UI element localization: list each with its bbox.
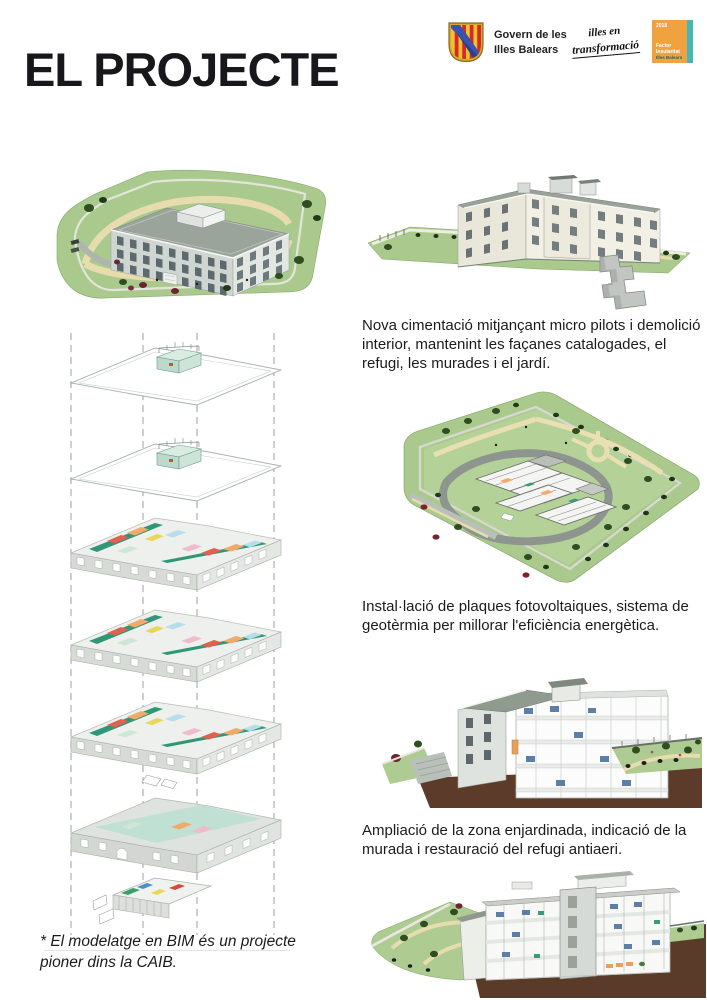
poster-page: EL PROJECTE Govern de lesIlles Balears [0, 0, 707, 1000]
building-section [456, 871, 680, 980]
site-render-illustration [27, 142, 332, 312]
left-garden [382, 741, 452, 785]
footnote: * El modelatge en BIM és un projecte pio… [40, 932, 312, 974]
roof-level-2 [71, 438, 281, 501]
caption-garden: Ampliació de la zona enjardinada, indica… [362, 821, 707, 859]
building-render-illustration [358, 147, 706, 315]
section-render-2-illustration [364, 868, 707, 1000]
section-render-illustration [366, 656, 706, 818]
illes-en-transformacio-logo: illes en transformació [569, 23, 641, 59]
ground-floor [71, 798, 281, 873]
exploded-axonometric-diagram [55, 333, 290, 935]
caption-foundation: Nova cimentació mitjançant micro pilots … [362, 316, 707, 374]
page-title: EL PROJECTE [24, 42, 339, 97]
floor-level-1 [71, 702, 281, 789]
illes-balears-shield-icon [447, 21, 485, 64]
floor-level-2 [71, 610, 281, 682]
factor-logo-stripe [687, 20, 693, 63]
roof-level-1 [71, 342, 281, 405]
building-volume [458, 175, 660, 267]
building-section [458, 678, 668, 798]
govern-logo-text: Govern de lesIlles Balears [494, 28, 567, 57]
aerial-site-plan-illustration [376, 387, 706, 589]
floor-level-3 [71, 518, 281, 590]
basement-refuge [93, 878, 211, 924]
govern-illes-balears-logo: Govern de lesIlles Balears [447, 21, 567, 64]
caption-energy: Instal·lació de plaques fotovoltaiques, … [362, 597, 707, 635]
factor-insularitat-logo: 2018 Factor Insularitat Illes Balears [652, 20, 693, 63]
